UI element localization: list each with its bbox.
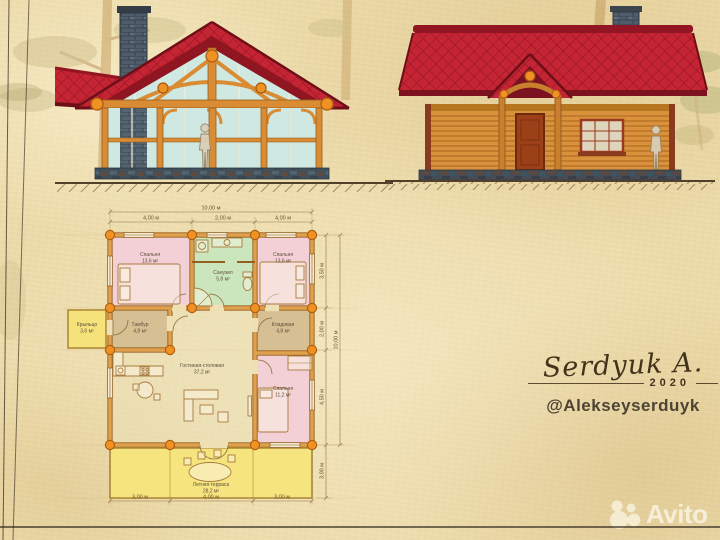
room-label: Летняя терраса bbox=[193, 482, 230, 488]
room-label: Спальня bbox=[140, 252, 160, 258]
foundation bbox=[419, 170, 681, 180]
glazed-facade bbox=[102, 108, 322, 172]
signature-rule-left bbox=[528, 383, 644, 384]
room-area: 4,8 м² bbox=[276, 329, 290, 335]
dim-bottom-3: 3,00 м bbox=[274, 495, 290, 501]
side-window bbox=[578, 120, 626, 156]
room-area: 11,2 м² bbox=[275, 393, 291, 399]
dim-top-1: 4,00 м bbox=[143, 216, 159, 222]
side-elevation bbox=[385, 0, 715, 195]
signature-name: Serdyuk A. bbox=[528, 347, 719, 385]
foundation bbox=[95, 168, 329, 179]
dim-bottom-2: 4,00 м bbox=[203, 495, 219, 501]
dim-right-2: 2,00 м bbox=[320, 321, 326, 337]
room-label: Кладовая bbox=[272, 322, 295, 328]
dim-right-3: 4,50 м bbox=[320, 389, 326, 405]
signature-rule-right bbox=[696, 383, 718, 384]
dim-right-1: 3,50 м bbox=[320, 263, 326, 279]
dim-bottom-1: 3,00 м bbox=[132, 495, 148, 501]
room-area: 5,8 м² bbox=[216, 277, 230, 283]
room-label: Гостиная-столовая bbox=[180, 363, 224, 369]
timber-wall bbox=[425, 104, 675, 170]
dim-top-2: 2,00 м bbox=[215, 216, 231, 222]
room-area: 37,2 м² bbox=[194, 370, 211, 376]
dim-total-top: 10,00 м bbox=[201, 206, 220, 212]
room-area: 13,6 м² bbox=[142, 259, 159, 265]
signature-handle: @Alekseyserduyk bbox=[528, 396, 718, 416]
entry-door bbox=[516, 114, 544, 170]
ground-line bbox=[55, 183, 393, 192]
avito-wordmark: Avito bbox=[646, 499, 708, 530]
room-label: Санузел bbox=[213, 270, 233, 276]
room-label: Спальня bbox=[273, 252, 293, 258]
dim-right-total: 10,00 м bbox=[334, 330, 340, 349]
drawing-sheet: Спальня 13,6 м² Санузел 5,8 м² Спальня 1… bbox=[0, 0, 720, 540]
dim-top-3: 4,00 м bbox=[275, 216, 291, 222]
dim-right-4: 3,00 м bbox=[320, 463, 326, 479]
room-area: 13,6 м² bbox=[275, 259, 292, 265]
room-label: Крыльцо bbox=[77, 322, 98, 328]
signature-block: Serdyuk A. 2020 @Alekseyserduyk bbox=[528, 350, 718, 416]
room-label: Спальня bbox=[273, 386, 293, 392]
room-area: 3,6 м² bbox=[80, 329, 94, 335]
floor-plan: Спальня 13,6 м² Санузел 5,8 м² Спальня 1… bbox=[60, 198, 360, 513]
avito-logo-icon bbox=[598, 497, 644, 531]
ground-line bbox=[385, 181, 715, 190]
front-elevation bbox=[55, 0, 395, 195]
avito-watermark: Avito bbox=[598, 497, 708, 531]
branch-bottom-left bbox=[0, 83, 42, 340]
room-area: 4,8 м² bbox=[133, 329, 147, 335]
room-label: Тамбур bbox=[132, 322, 149, 328]
